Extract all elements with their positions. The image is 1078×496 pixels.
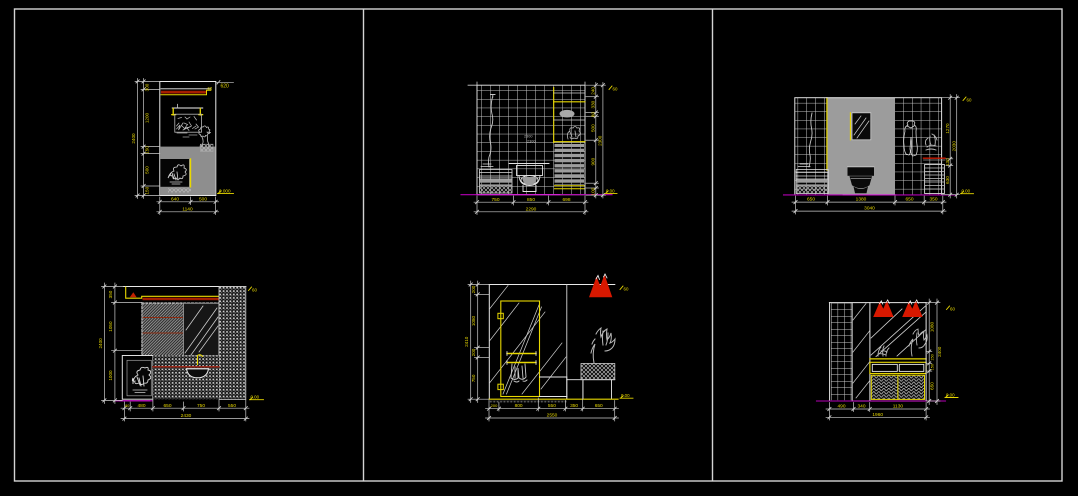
svg-text:550: 550 xyxy=(548,403,556,409)
svg-text:2300: 2300 xyxy=(527,140,535,144)
svg-text:750: 750 xyxy=(471,374,476,382)
svg-text:60: 60 xyxy=(613,87,618,92)
svg-text:0.00: 0.00 xyxy=(621,393,630,398)
svg-text:500: 500 xyxy=(199,197,207,203)
svg-text:60: 60 xyxy=(208,86,213,91)
svg-text:850: 850 xyxy=(527,197,535,203)
svg-text:750: 750 xyxy=(491,197,499,203)
svg-text:2400: 2400 xyxy=(131,133,136,144)
svg-text:350: 350 xyxy=(929,197,937,203)
svg-text:698: 698 xyxy=(562,197,570,203)
svg-text:60: 60 xyxy=(624,287,629,292)
svg-text:650: 650 xyxy=(163,403,171,409)
svg-text:200: 200 xyxy=(491,403,498,408)
svg-text:1130: 1130 xyxy=(893,403,904,409)
svg-text:900: 900 xyxy=(590,157,595,165)
svg-text:650: 650 xyxy=(929,382,934,390)
svg-text:2300: 2300 xyxy=(524,135,532,139)
svg-text:100: 100 xyxy=(590,187,595,195)
svg-text:1380: 1380 xyxy=(856,197,867,203)
svg-text:3040: 3040 xyxy=(864,206,875,212)
svg-text:2410: 2410 xyxy=(464,336,469,347)
svg-text:0.00: 0.00 xyxy=(606,188,615,193)
svg-text:630: 630 xyxy=(945,176,950,184)
svg-text:60: 60 xyxy=(252,288,257,293)
svg-text:130: 130 xyxy=(945,158,950,166)
svg-text:1960: 1960 xyxy=(872,412,883,418)
svg-text:350: 350 xyxy=(570,403,578,409)
svg-text:1200: 1200 xyxy=(145,112,150,123)
svg-text:150: 150 xyxy=(930,354,934,360)
svg-text:150: 150 xyxy=(930,364,934,370)
svg-text:80: 80 xyxy=(590,112,595,118)
svg-text:500: 500 xyxy=(590,124,595,132)
svg-text:650: 650 xyxy=(905,197,913,203)
svg-text:750: 750 xyxy=(197,403,205,409)
svg-text:2290: 2290 xyxy=(526,206,537,212)
svg-text:60: 60 xyxy=(967,98,972,103)
svg-text:640: 640 xyxy=(171,197,179,203)
svg-text:200: 200 xyxy=(471,348,476,356)
svg-text:490: 490 xyxy=(837,403,845,409)
svg-text:620: 620 xyxy=(221,84,230,90)
svg-text:0.00: 0.00 xyxy=(251,395,260,400)
svg-text:0.00: 0.00 xyxy=(962,189,971,194)
svg-text:550: 550 xyxy=(228,403,236,409)
svg-text:650: 650 xyxy=(595,403,603,409)
svg-text:200: 200 xyxy=(471,285,476,293)
svg-text:2300: 2300 xyxy=(598,135,603,146)
svg-text:80: 80 xyxy=(125,404,129,408)
svg-text:1080: 1080 xyxy=(929,321,934,332)
svg-text:1080: 1080 xyxy=(471,315,476,326)
svg-text:300: 300 xyxy=(145,83,150,91)
svg-text:0.00: 0.00 xyxy=(946,392,955,397)
svg-text:2400: 2400 xyxy=(98,338,103,349)
svg-text:2430: 2430 xyxy=(181,413,192,419)
svg-text:2400: 2400 xyxy=(937,346,942,357)
svg-text:150: 150 xyxy=(145,186,150,194)
svg-text:1270: 1270 xyxy=(945,123,950,134)
svg-text:240: 240 xyxy=(590,87,595,95)
svg-text:330: 330 xyxy=(590,100,595,108)
svg-text:2550: 2550 xyxy=(547,413,558,419)
svg-text:650: 650 xyxy=(807,197,815,203)
svg-text:480: 480 xyxy=(137,403,145,409)
svg-text:1140: 1140 xyxy=(182,207,193,213)
svg-text:340: 340 xyxy=(857,403,865,409)
svg-text:1050: 1050 xyxy=(108,321,113,332)
svg-text:500: 500 xyxy=(145,166,150,174)
svg-text:60: 60 xyxy=(950,307,955,312)
svg-text:350: 350 xyxy=(108,290,113,298)
svg-text:800: 800 xyxy=(515,403,523,409)
svg-text:150: 150 xyxy=(145,146,150,154)
svg-text:2030: 2030 xyxy=(951,141,956,152)
svg-text:1000: 1000 xyxy=(108,370,113,381)
